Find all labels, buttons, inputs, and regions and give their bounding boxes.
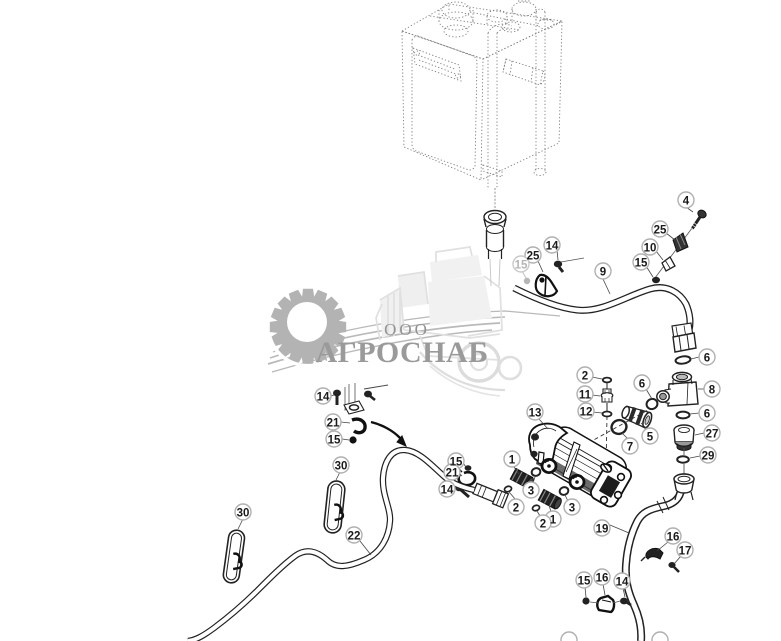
svg-text:25: 25 (654, 225, 667, 237)
svg-text:16: 16 (596, 573, 609, 585)
svg-text:25: 25 (527, 251, 540, 263)
svg-text:5: 5 (647, 432, 654, 444)
svg-text:19: 19 (596, 524, 609, 536)
svg-text:2: 2 (582, 371, 588, 383)
svg-text:6: 6 (704, 409, 710, 421)
svg-text:14: 14 (546, 241, 559, 253)
svg-text:30: 30 (335, 461, 348, 473)
svg-text:6: 6 (704, 353, 710, 365)
svg-text:21: 21 (446, 468, 459, 480)
svg-text:9: 9 (600, 267, 606, 279)
svg-text:2: 2 (540, 519, 546, 531)
svg-text:14: 14 (616, 577, 629, 589)
svg-text:2: 2 (513, 503, 519, 515)
svg-text:14: 14 (317, 392, 330, 404)
svg-text:16: 16 (667, 532, 680, 544)
svg-text:11: 11 (579, 390, 592, 402)
svg-text:27: 27 (706, 429, 719, 441)
svg-text:6: 6 (639, 379, 645, 391)
svg-text:3: 3 (569, 503, 575, 515)
svg-text:7: 7 (627, 442, 633, 454)
svg-text:21: 21 (327, 418, 340, 430)
svg-text:22: 22 (348, 531, 361, 543)
svg-text:14: 14 (441, 485, 454, 497)
svg-text:30: 30 (237, 508, 250, 520)
svg-text:8: 8 (709, 385, 716, 397)
svg-text:12: 12 (580, 407, 593, 419)
svg-text:4: 4 (683, 196, 690, 208)
svg-text:3: 3 (528, 486, 534, 498)
svg-text:1: 1 (550, 515, 557, 527)
svg-text:15: 15 (635, 258, 648, 270)
svg-text:17: 17 (679, 546, 692, 558)
svg-text:13: 13 (529, 408, 542, 420)
svg-text:29: 29 (702, 451, 715, 463)
svg-text:АГРОСНАБ: АГРОСНАБ (315, 336, 488, 369)
svg-text:15: 15 (328, 435, 341, 447)
svg-text:15: 15 (515, 260, 528, 272)
svg-text:1: 1 (509, 455, 516, 467)
svg-text:15: 15 (578, 576, 591, 588)
svg-text:10: 10 (644, 243, 657, 255)
